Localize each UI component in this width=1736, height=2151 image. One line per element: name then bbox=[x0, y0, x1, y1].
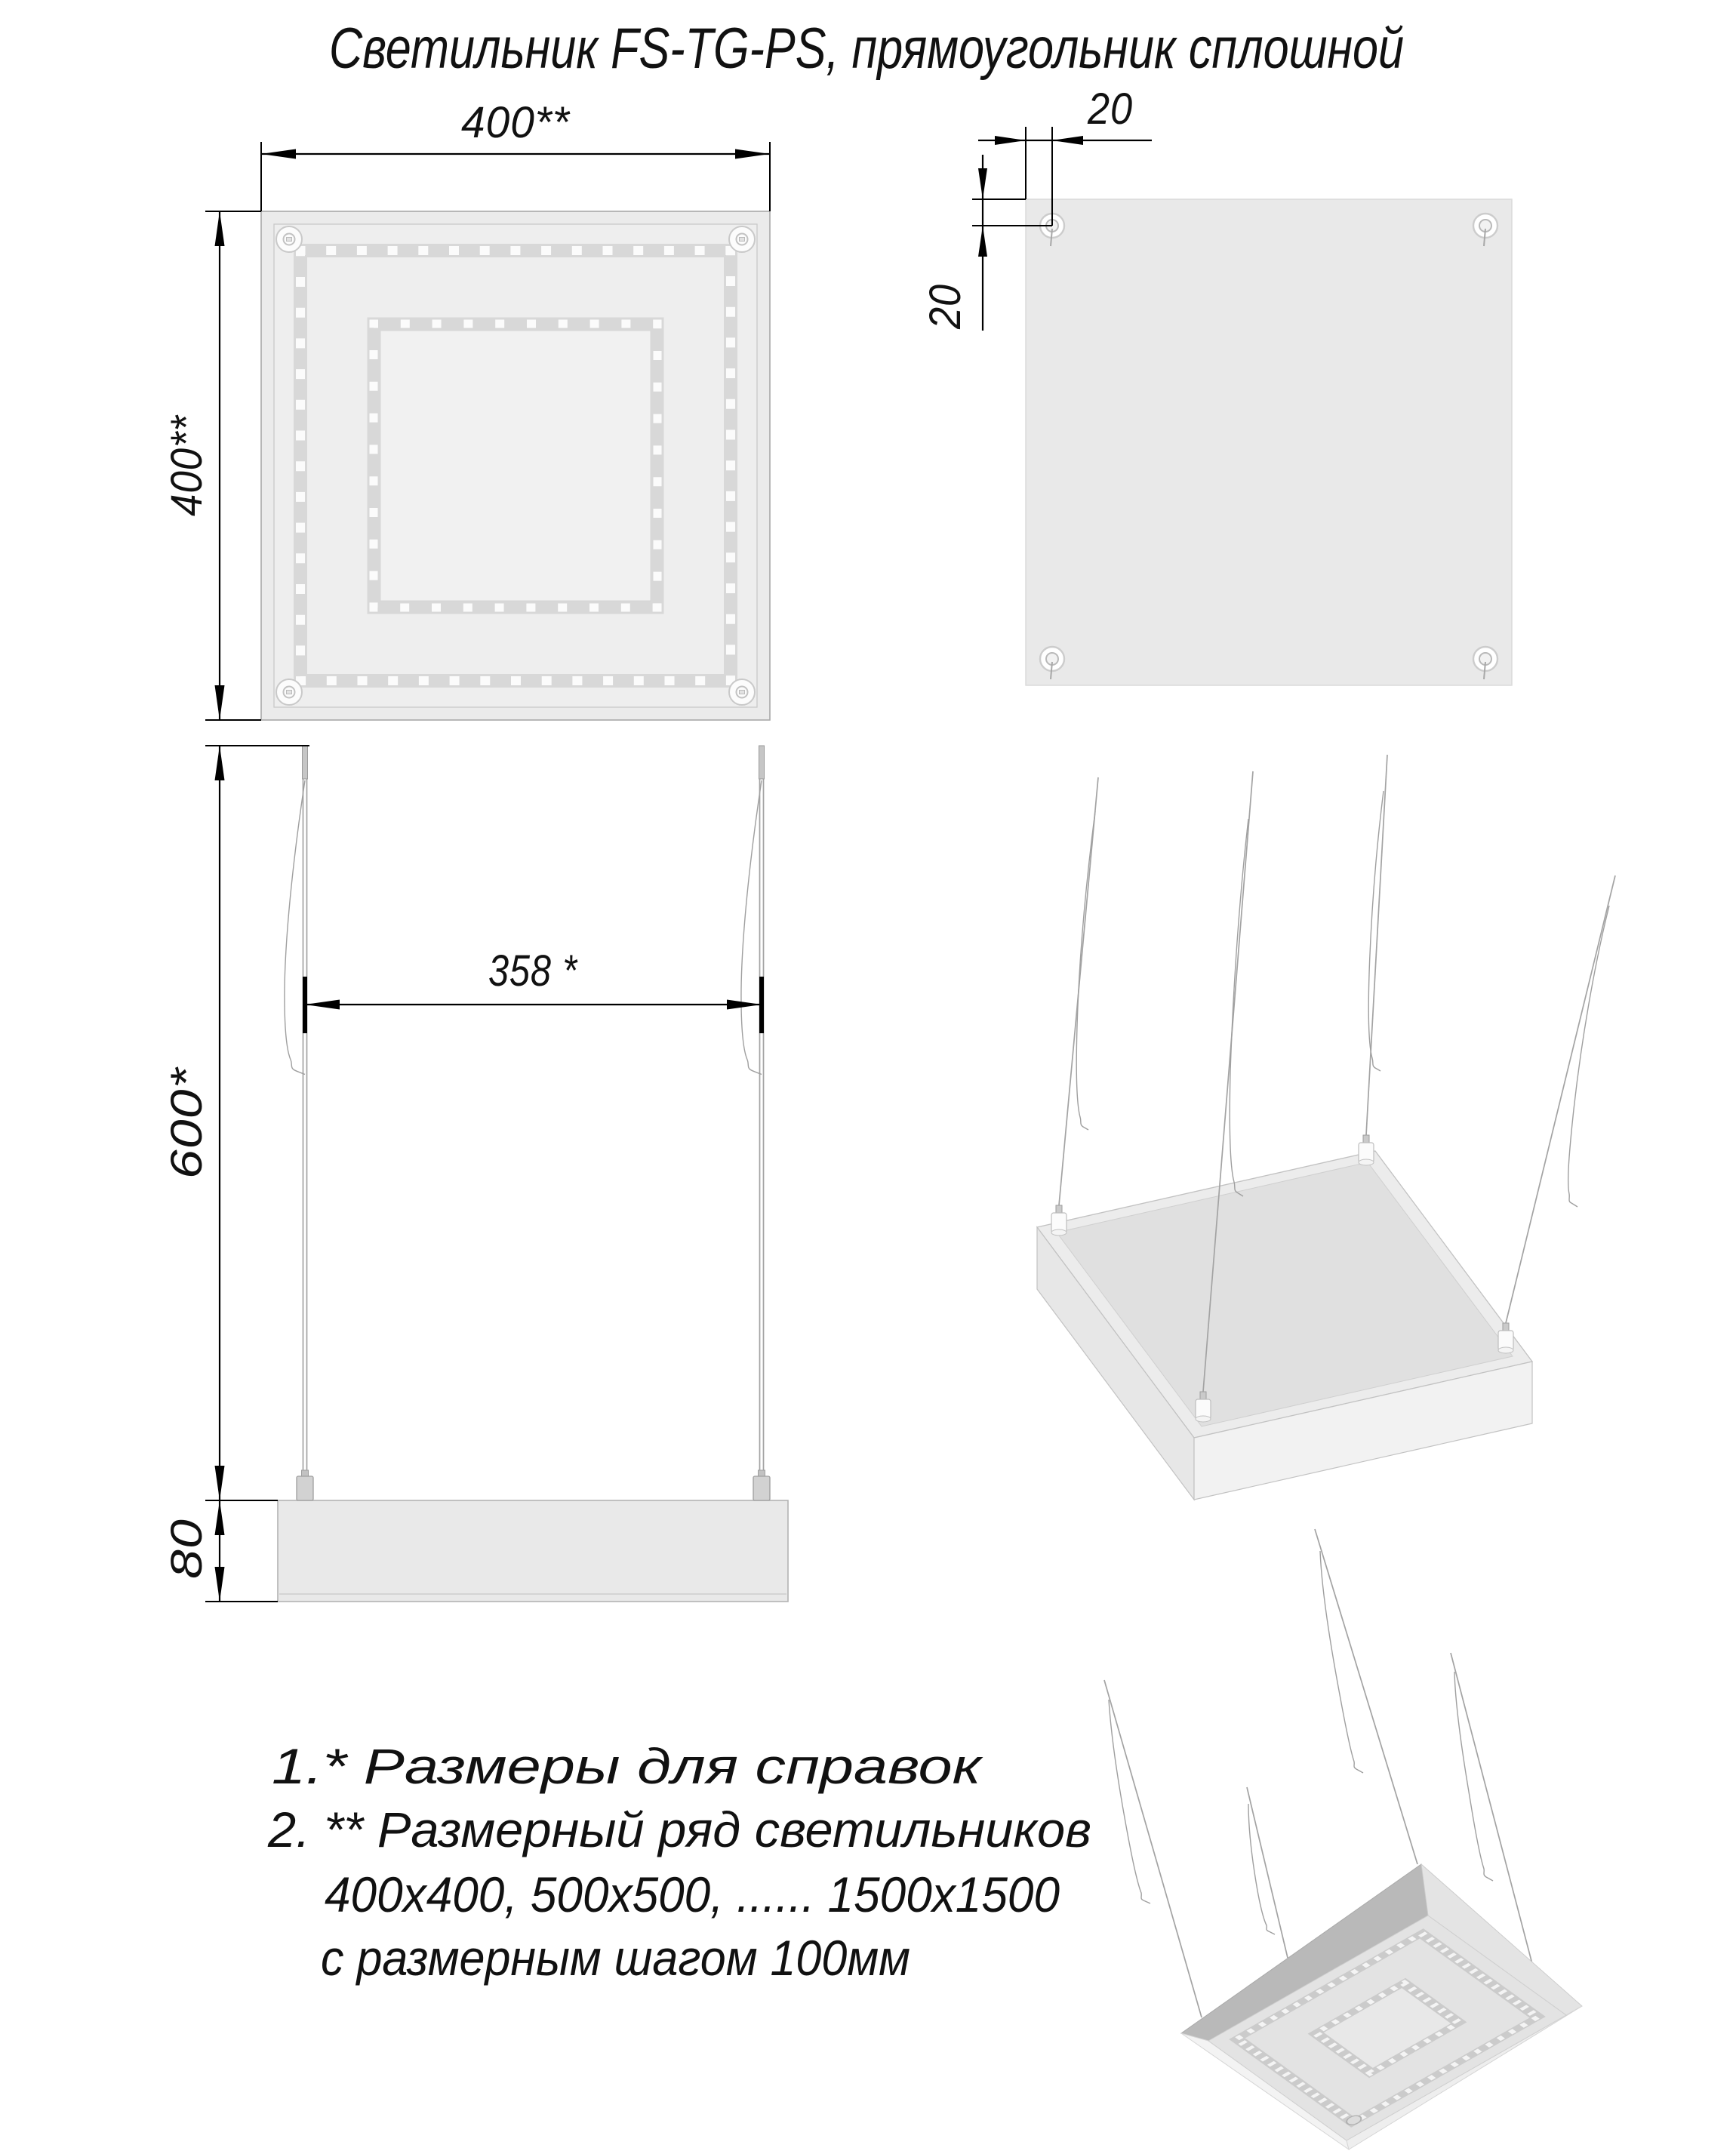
dim-cable-span-label: 358 * bbox=[488, 946, 578, 995]
wire-loop bbox=[1568, 906, 1609, 1207]
note-line-2: 2. ** Размерный ряд светильников bbox=[267, 1802, 1091, 1857]
suspension-wire bbox=[1366, 755, 1387, 1135]
suspension-cap bbox=[1359, 1135, 1374, 1165]
corner-gland bbox=[276, 679, 302, 705]
note-line-3: 400х400, 500х500, ...... 1500х1500 bbox=[325, 1866, 1060, 1922]
view-isometric-bottom bbox=[1104, 1529, 1582, 2149]
cable-gland bbox=[297, 1470, 313, 1500]
wire-loop bbox=[1076, 811, 1095, 1130]
suspension-wire bbox=[1104, 1680, 1202, 2017]
wire-loop bbox=[741, 780, 762, 1075]
suspension-wire-right bbox=[741, 746, 765, 1478]
wire-loop bbox=[1248, 1804, 1275, 1934]
note-line-1: 1.* Размеры для справок bbox=[272, 1738, 983, 1794]
dim-body-height: 80 bbox=[162, 1500, 278, 1602]
dim-panel-height: 400** bbox=[162, 211, 261, 720]
top-face-outline bbox=[1026, 199, 1512, 685]
cable-gland bbox=[753, 1470, 770, 1500]
wire-loop bbox=[1230, 819, 1248, 1196]
suspension-wire bbox=[1506, 875, 1615, 1323]
suspension-cap bbox=[1051, 1205, 1067, 1236]
view-isometric-top bbox=[1037, 755, 1615, 1500]
suspension-wire bbox=[1315, 1529, 1417, 1864]
dim-hole-offset-x-label: 20 bbox=[1087, 85, 1133, 134]
dim-cable-span: 358 * bbox=[303, 946, 764, 1033]
dim-cable-length-label: 600* bbox=[162, 1066, 211, 1179]
corner-gland bbox=[729, 226, 755, 252]
corner-gland bbox=[729, 679, 755, 705]
wire-crimp bbox=[759, 746, 765, 779]
dim-panel-width-label: 400** bbox=[461, 98, 571, 147]
dim-body-height-label: 80 bbox=[162, 1519, 211, 1579]
notes-block: 1.* Размеры для справок 2. ** Размерный … bbox=[267, 1738, 1091, 1986]
view-front-suspended: 358 * 600* 80 bbox=[162, 746, 788, 1602]
corner-gland bbox=[276, 226, 302, 252]
wire-loop bbox=[1320, 1551, 1363, 1773]
wire-loop bbox=[1368, 791, 1384, 1071]
suspension-wire bbox=[1247, 1787, 1288, 1958]
dim-cable-length: 600* bbox=[162, 746, 309, 1500]
inner-diffuser-area bbox=[380, 331, 651, 601]
wire-loop bbox=[1109, 1700, 1150, 1903]
view-led-face: 400** 400** bbox=[162, 98, 770, 720]
note-line-4: с размерным шагом 100мм bbox=[321, 1930, 910, 1986]
luminaire-body-front bbox=[278, 1500, 788, 1602]
dim-panel-width: 400** bbox=[261, 98, 770, 211]
wire-crimp bbox=[303, 746, 308, 779]
wire-loop bbox=[285, 780, 305, 1075]
drawing-title: Светильник FS-TG-PS, прямоугольник сплош… bbox=[329, 17, 1404, 81]
wire-loop bbox=[1454, 1672, 1493, 1881]
dim-hole-offset-y-label: 20 bbox=[921, 284, 970, 330]
suspension-wire-left bbox=[285, 746, 308, 1478]
view-top-face: 20 20 bbox=[921, 85, 1512, 685]
drawing-sheet: Светильник FS-TG-PS, прямоугольник сплош… bbox=[0, 0, 1736, 2151]
dim-panel-height-label: 400** bbox=[162, 414, 211, 516]
